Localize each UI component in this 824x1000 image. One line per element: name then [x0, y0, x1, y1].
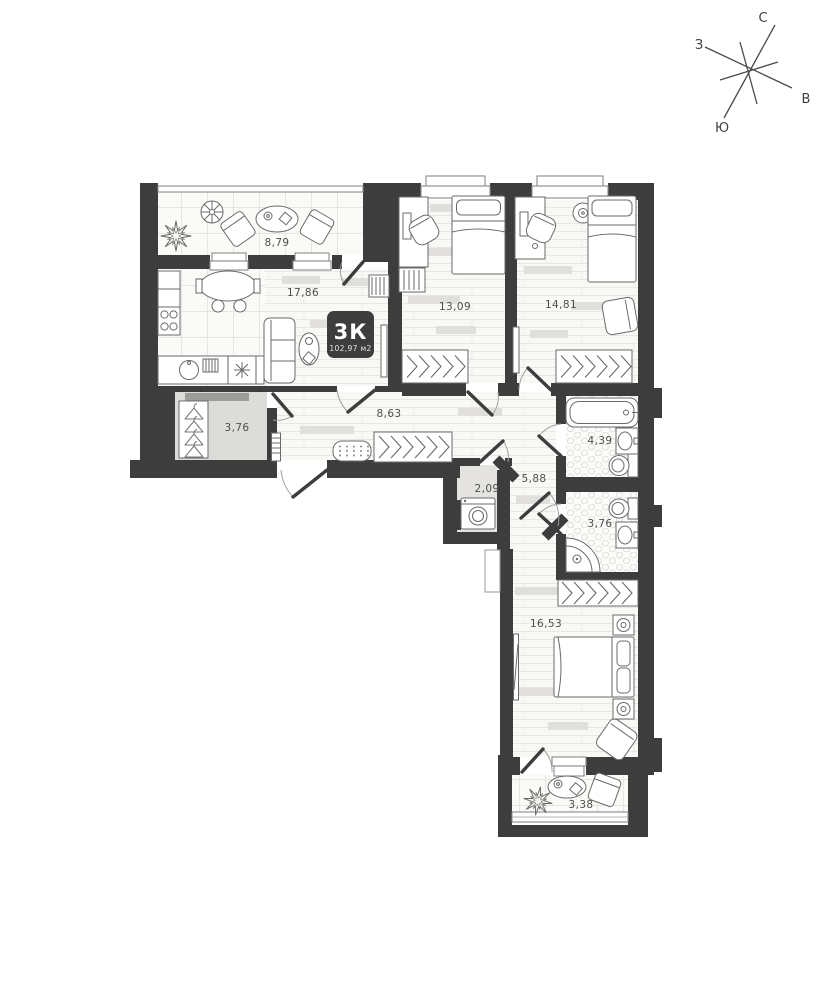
room-area-label: 17,86	[287, 287, 319, 299]
bed-double-icon	[554, 637, 634, 697]
fridge-icon	[228, 356, 256, 384]
wall-segment	[551, 383, 654, 396]
kitchen-window-sill	[210, 261, 248, 270]
nightstand-lamp-icon	[613, 615, 634, 635]
door-entrance	[281, 470, 327, 497]
bedroom-2-window	[537, 176, 603, 186]
wall-segment	[158, 386, 337, 392]
room-area-label: 3,38	[569, 799, 594, 811]
room-area-label: 4,39	[588, 435, 613, 447]
electrical-panel-icon	[272, 433, 281, 461]
apartment-area: 102,97 м2	[329, 344, 371, 353]
wall-segment	[145, 391, 175, 462]
wall-segment	[654, 505, 662, 527]
compass-east-label: В	[802, 92, 811, 107]
round-table-icon	[201, 201, 223, 223]
kitchen-window	[295, 253, 329, 261]
armchair-icon	[601, 296, 638, 335]
bedroom-3-window-sill	[554, 766, 584, 776]
hanger-rail-icon	[179, 401, 208, 458]
wall-segment	[498, 755, 512, 835]
compass-west-label: З	[695, 38, 703, 53]
wall-segment	[402, 383, 466, 396]
bed-single-icon	[588, 196, 636, 282]
wall-segment	[556, 390, 566, 424]
wall-segment	[327, 460, 460, 478]
kitchen-counter-icon	[158, 271, 180, 307]
stove-icon	[158, 307, 180, 335]
loggia-top-glazing	[158, 186, 363, 192]
wall-segment	[498, 383, 519, 396]
kitchen-window-sill	[293, 261, 331, 270]
floor-plan-page: 8,79 17,86 13,09 14,81 3,76 8,63 5,88 2,…	[0, 0, 824, 1000]
toilet-icon	[609, 454, 638, 477]
doormat-icon	[333, 441, 371, 461]
wall-segment	[158, 255, 210, 269]
exterior-niche	[485, 550, 500, 592]
compass-north-label: С	[758, 11, 767, 26]
wall-segment	[556, 572, 654, 580]
room-area-label: 13,09	[439, 301, 471, 313]
sofa-icon	[264, 318, 295, 383]
utility-shaft	[453, 500, 461, 530]
wall-segment	[654, 388, 662, 418]
radiator-panel-icon	[513, 327, 519, 373]
apartment-type-badge: 3К 102,97 м2	[327, 311, 374, 358]
bedroom-3-window	[552, 757, 586, 766]
room-area-label: 16,53	[530, 618, 562, 630]
wall-segment	[375, 386, 402, 392]
nightstand-lamp-icon	[613, 699, 634, 719]
wall-segment	[248, 255, 297, 269]
sink-icon	[616, 428, 638, 454]
shelf-icon	[185, 393, 249, 401]
compass-south-label: Ю	[715, 121, 729, 136]
wardrobe-icon	[374, 432, 452, 462]
wall-segment	[556, 456, 566, 504]
wall-segment	[443, 532, 510, 544]
radiator-icon	[399, 268, 425, 292]
room-area-label: 3,76	[588, 518, 613, 530]
wardrobe-icon	[558, 580, 638, 606]
radiator-icon	[369, 275, 389, 297]
room-area-label: 14,81	[545, 299, 577, 311]
compass-rose-icon	[705, 25, 792, 118]
kitchen-window	[212, 253, 246, 261]
sink-icon	[616, 522, 638, 548]
wall-segment	[556, 534, 566, 572]
room-area-label: 8,79	[265, 237, 290, 249]
tv-icon	[381, 325, 387, 377]
toilet-icon	[609, 498, 638, 519]
bed-single-icon	[452, 196, 505, 274]
room-area-label: 3,76	[225, 422, 250, 434]
room-area-label: 5,88	[522, 473, 547, 485]
wall-segment	[566, 477, 638, 492]
coffee-table-icon	[548, 776, 586, 798]
bedroom-1-window	[426, 176, 485, 186]
washing-machine-icon	[461, 498, 495, 529]
coffee-table-icon	[299, 333, 319, 365]
mirror-icon	[514, 634, 519, 700]
compass: С В Ю З	[695, 11, 811, 136]
coffee-table-icon	[256, 206, 298, 232]
wall-segment	[638, 183, 654, 775]
wardrobe-icon	[402, 350, 468, 383]
room-area-label: 2,09	[475, 483, 500, 495]
wall-segment	[586, 757, 638, 775]
wall-segment	[130, 460, 277, 478]
bathtub-icon	[566, 398, 638, 427]
floor-plan: 8,79 17,86 13,09 14,81 3,76 8,63 5,88 2,…	[0, 0, 824, 1000]
wardrobe-icon	[556, 350, 632, 383]
wall-segment	[500, 549, 513, 757]
apartment-type: 3К	[334, 320, 368, 344]
laundry-furniture	[453, 498, 495, 530]
wall-segment	[498, 825, 648, 837]
wall-segment	[654, 738, 662, 772]
room-area-label: 8,63	[377, 408, 402, 420]
